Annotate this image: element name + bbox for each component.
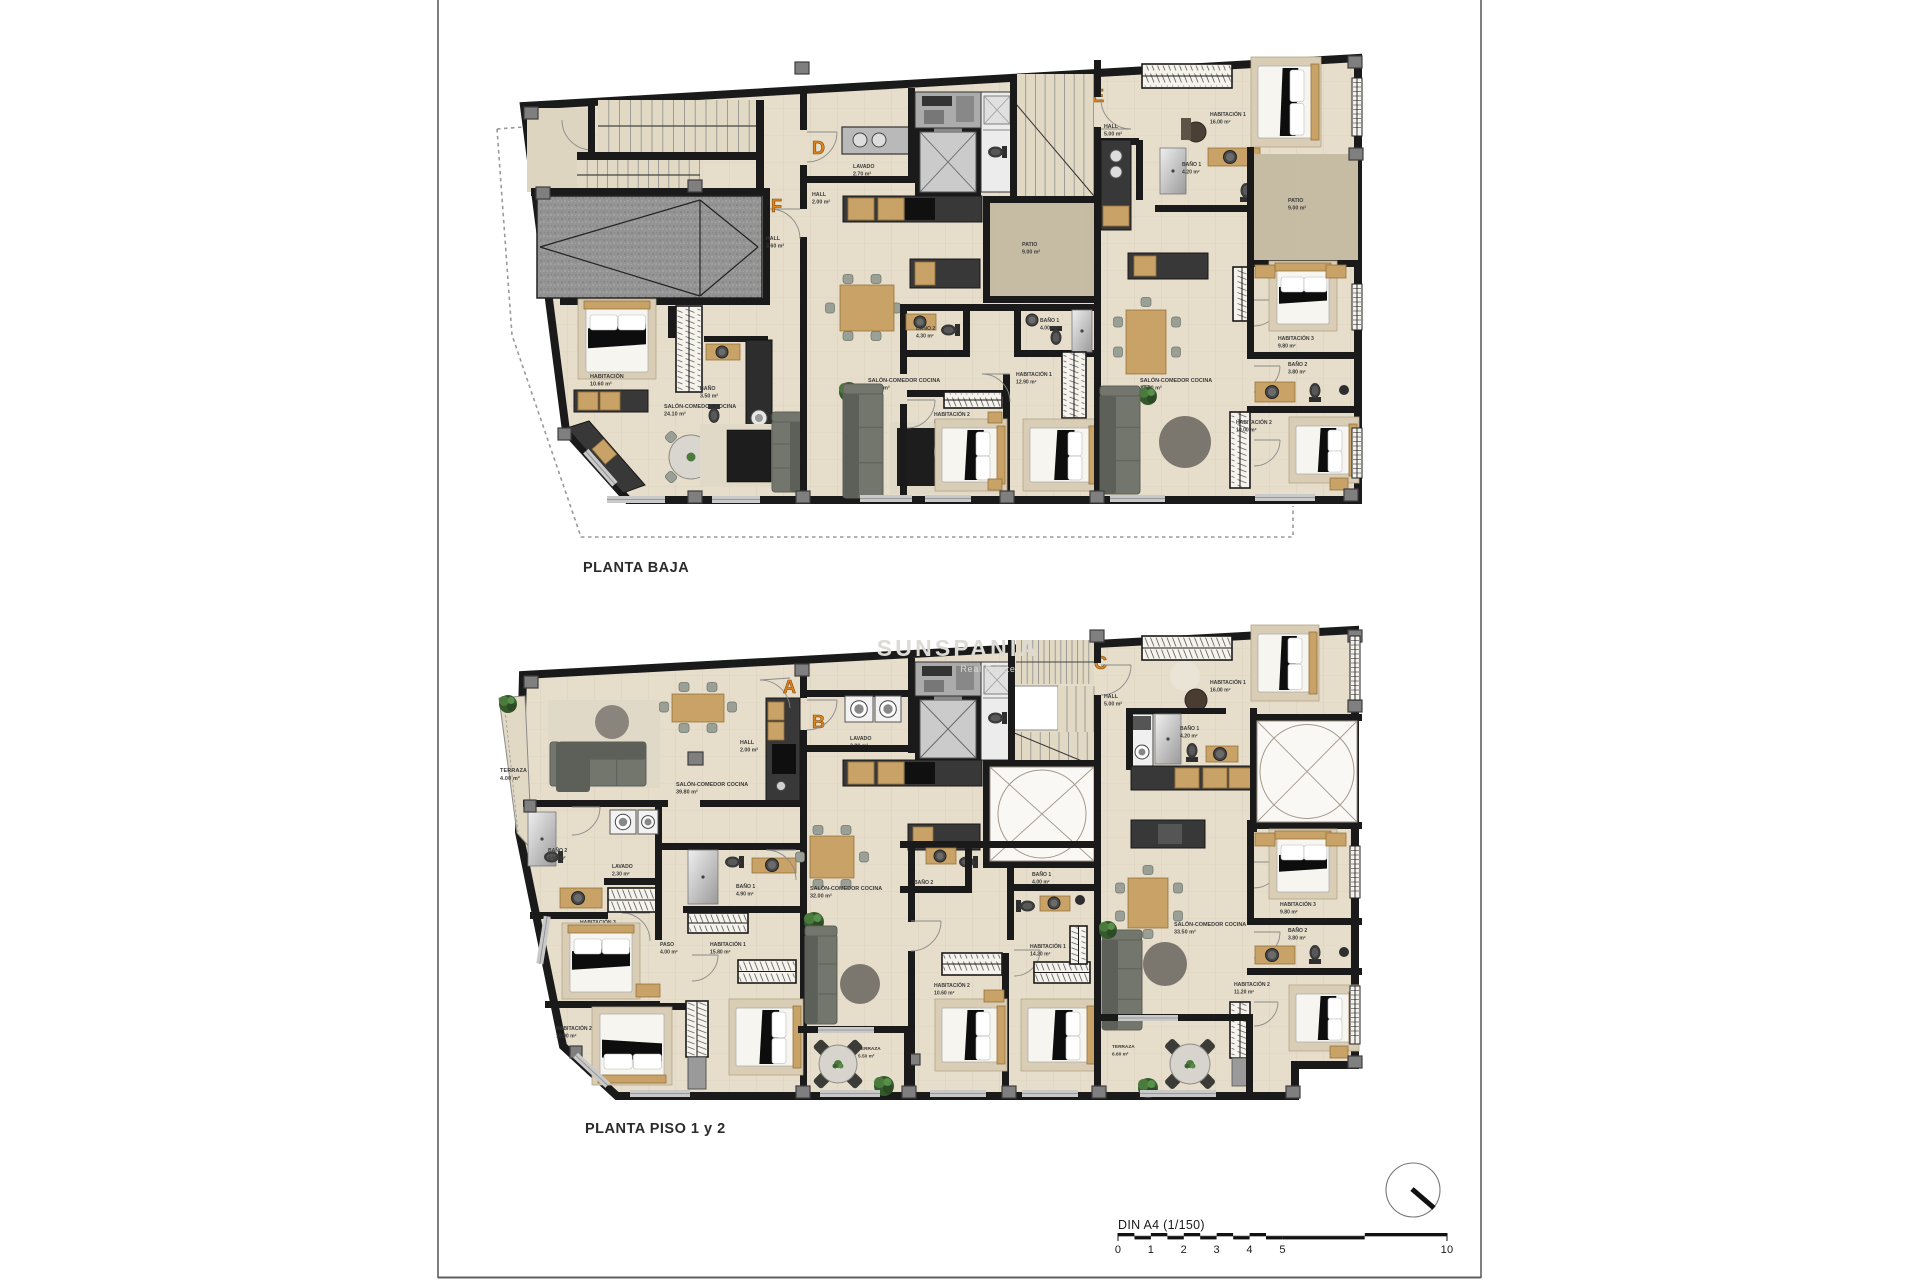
svg-text:LAVADO: LAVADO	[853, 164, 874, 170]
svg-text:HABITACIÓN 1: HABITACIÓN 1	[1210, 678, 1246, 686]
svg-text:2: 2	[1181, 1244, 1187, 1256]
svg-text:LAVADO: LAVADO	[612, 864, 633, 870]
svg-text:HALL: HALL	[1104, 694, 1119, 700]
svg-text:6.60 m²: 6.60 m²	[1112, 1051, 1129, 1057]
svg-text:10.60 m²: 10.60 m²	[590, 381, 612, 387]
svg-text:HALL: HALL	[740, 740, 755, 746]
svg-text:SUNSPANIA: SUNSPANIA	[877, 635, 1040, 661]
svg-text:5.00 m²: 5.00 m²	[1104, 131, 1122, 137]
svg-text:HABITACIÓN 3: HABITACIÓN 3	[1278, 334, 1314, 342]
svg-text:11.20 m²: 11.20 m²	[1234, 989, 1254, 995]
svg-text:F: F	[771, 196, 782, 216]
svg-text:16.00 m²: 16.00 m²	[1210, 119, 1231, 125]
svg-text:HALL: HALL	[812, 192, 827, 198]
svg-text:16.00 m²: 16.00 m²	[1210, 687, 1231, 693]
svg-text:DIN A4 (1/150): DIN A4 (1/150)	[1118, 1218, 1205, 1232]
svg-text:HABITACIÓN 1: HABITACIÓN 1	[1210, 110, 1246, 118]
svg-text:4.00 m²: 4.00 m²	[1032, 879, 1050, 885]
svg-text:HABITACIÓN: HABITACIÓN	[590, 372, 624, 380]
svg-text:PATIO: PATIO	[1288, 198, 1303, 204]
svg-text:9.80 m²: 9.80 m²	[1278, 343, 1296, 349]
svg-text:32.00 m²: 32.00 m²	[810, 893, 832, 899]
svg-text:BAÑO 2: BAÑO 2	[914, 879, 933, 886]
svg-text:2.30 m²: 2.30 m²	[612, 871, 630, 877]
svg-text:BAÑO 1: BAÑO 1	[1180, 725, 1199, 732]
svg-text:2.00 m²: 2.00 m²	[740, 747, 758, 753]
svg-text:HABITACIÓN 1: HABITACIÓN 1	[710, 940, 746, 948]
svg-text:HALL: HALL	[766, 236, 781, 242]
svg-text:PLANTA PISO 1 y 2: PLANTA PISO 1 y 2	[585, 1121, 726, 1137]
svg-text:3: 3	[1214, 1244, 1220, 1256]
svg-text:HABITACIÓN 2: HABITACIÓN 2	[556, 1024, 592, 1032]
svg-text:SALÓN-COMEDOR COCINA: SALÓN-COMEDOR COCINA	[810, 884, 882, 892]
svg-text:10: 10	[1441, 1244, 1454, 1256]
svg-text:PATIO: PATIO	[1022, 242, 1037, 248]
svg-text:2.00 m²: 2.00 m²	[812, 199, 830, 205]
svg-text:HABITACIÓN 2: HABITACIÓN 2	[1236, 418, 1272, 426]
svg-text:5.00 m²: 5.00 m²	[1104, 701, 1122, 707]
svg-text:HABITACIÓN 2: HABITACIÓN 2	[934, 981, 970, 989]
svg-text:3.60 m²: 3.60 m²	[766, 243, 784, 249]
svg-text:SALÓN-COMEDOR COCINA: SALÓN-COMEDOR COCINA	[1174, 920, 1246, 928]
svg-text:4.60 m²: 4.60 m²	[548, 855, 566, 861]
svg-text:4.20 m²: 4.20 m²	[1182, 169, 1200, 175]
svg-text:10.90 m²: 10.90 m²	[556, 1033, 577, 1039]
svg-text:BAÑO 2: BAÑO 2	[1288, 927, 1307, 934]
svg-text:TERRAZA: TERRAZA	[1112, 1044, 1135, 1050]
svg-text:HABITACIÓN 2: HABITACIÓN 2	[934, 410, 970, 418]
svg-text:Real Estate: Real Estate	[960, 664, 1015, 674]
svg-text:SALÓN-COMEDOR COCINA: SALÓN-COMEDOR COCINA	[868, 376, 940, 384]
svg-text:TERRAZA: TERRAZA	[500, 768, 527, 774]
svg-text:4.90 m²: 4.90 m²	[736, 891, 754, 897]
svg-text:3.80 m²: 3.80 m²	[1288, 935, 1306, 941]
svg-text:HALL: HALL	[1104, 124, 1119, 130]
svg-text:PLANTA BAJA: PLANTA BAJA	[583, 560, 689, 576]
svg-text:HABITACIÓN 1: HABITACIÓN 1	[1016, 370, 1052, 378]
svg-text:3.80 m²: 3.80 m²	[1288, 369, 1306, 375]
svg-text:BAÑO: BAÑO	[700, 385, 716, 392]
svg-text:D: D	[812, 138, 825, 158]
svg-text:BAÑO 1: BAÑO 1	[1032, 871, 1051, 878]
svg-text:12.90 m²: 12.90 m²	[1016, 379, 1037, 385]
svg-text:A: A	[783, 677, 796, 697]
svg-text:4.00 m²: 4.00 m²	[500, 776, 520, 782]
svg-text:9.80 m²: 9.80 m²	[1280, 909, 1298, 915]
svg-text:PASO: PASO	[660, 942, 674, 948]
svg-text:HABITACIÓN 1: HABITACIÓN 1	[1030, 942, 1066, 950]
svg-text:LAVADO: LAVADO	[850, 736, 871, 742]
svg-text:4: 4	[1246, 1244, 1252, 1256]
svg-text:10.00 m²: 10.00 m²	[1236, 427, 1257, 433]
svg-text:SALÓN-COMEDOR COCINA: SALÓN-COMEDOR COCINA	[676, 780, 748, 788]
svg-text:SALÓN-COMEDOR COCINA: SALÓN-COMEDOR COCINA	[1140, 376, 1212, 384]
svg-text:5.50 m²: 5.50 m²	[858, 1053, 875, 1059]
svg-text:3.50 m²: 3.50 m²	[700, 393, 718, 399]
svg-text:HABITACIÓN 2: HABITACIÓN 2	[1234, 980, 1270, 988]
svg-text:5: 5	[1279, 1244, 1285, 1256]
svg-text:39.80 m²: 39.80 m²	[676, 789, 698, 795]
svg-text:BAÑO 1: BAÑO 1	[1040, 317, 1059, 324]
svg-text:0: 0	[1115, 1244, 1121, 1256]
svg-text:BAÑO 2: BAÑO 2	[916, 325, 935, 332]
svg-text:HABITACIÓN 3: HABITACIÓN 3	[1280, 900, 1316, 908]
svg-text:BAÑO 2: BAÑO 2	[548, 847, 567, 854]
svg-text:9.00 m²: 9.00 m²	[1288, 205, 1306, 211]
svg-text:BAÑO 1: BAÑO 1	[1182, 161, 1201, 168]
svg-text:BAÑO 2: BAÑO 2	[1288, 361, 1307, 368]
svg-text:BAÑO 1: BAÑO 1	[736, 883, 755, 890]
svg-text:15.80 m²: 15.80 m²	[710, 949, 731, 955]
svg-text:9.00 m²: 9.00 m²	[1022, 249, 1040, 255]
svg-text:4.30 m²: 4.30 m²	[916, 333, 934, 339]
svg-text:SALÓN-COMEDOR COCINA: SALÓN-COMEDOR COCINA	[664, 402, 736, 410]
svg-text:1: 1	[1148, 1244, 1154, 1256]
svg-text:24.10 m²: 24.10 m²	[664, 411, 686, 417]
svg-text:4.00 m²: 4.00 m²	[1040, 325, 1058, 331]
svg-text:10.60 m²: 10.60 m²	[934, 990, 955, 996]
svg-text:33.50 m²: 33.50 m²	[1174, 929, 1196, 935]
svg-text:4.20 m²: 4.20 m²	[1180, 733, 1198, 739]
svg-text:4.00 m²: 4.00 m²	[660, 949, 678, 955]
